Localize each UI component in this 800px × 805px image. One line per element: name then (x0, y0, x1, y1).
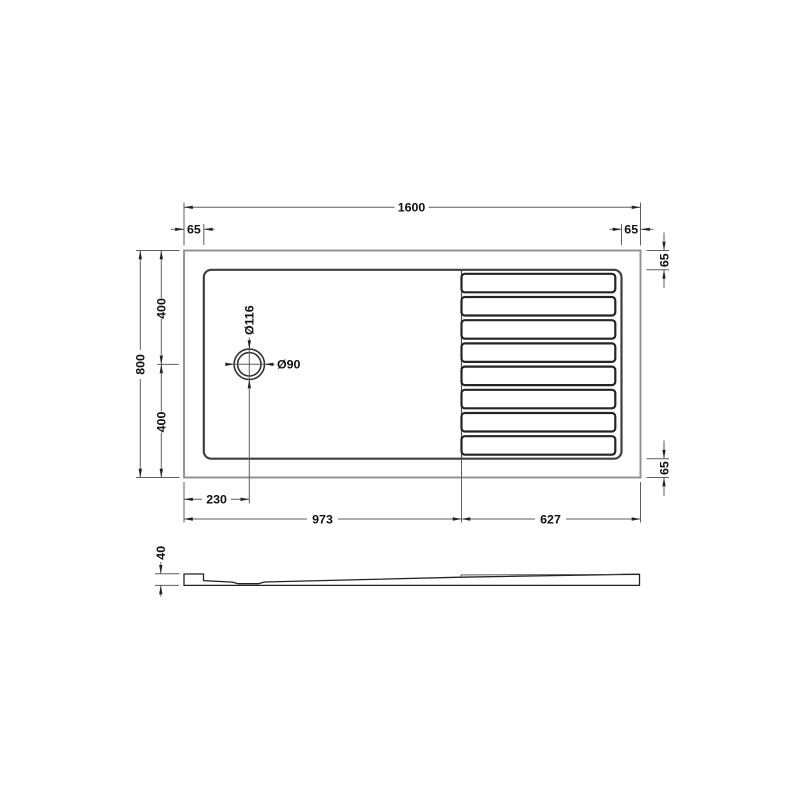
svg-text:400: 400 (155, 298, 169, 319)
svg-text:65: 65 (657, 253, 671, 267)
svg-text:400: 400 (155, 412, 169, 433)
svg-text:Ø90: Ø90 (277, 358, 301, 372)
svg-text:800: 800 (134, 354, 148, 375)
svg-text:65: 65 (187, 223, 201, 237)
svg-text:627: 627 (540, 512, 561, 526)
svg-text:40: 40 (154, 546, 168, 560)
svg-text:65: 65 (624, 223, 638, 237)
svg-text:65: 65 (657, 461, 671, 475)
svg-text:Ø116: Ø116 (243, 305, 257, 335)
svg-text:230: 230 (206, 493, 227, 507)
svg-text:973: 973 (312, 512, 333, 526)
svg-text:1600: 1600 (398, 201, 426, 215)
